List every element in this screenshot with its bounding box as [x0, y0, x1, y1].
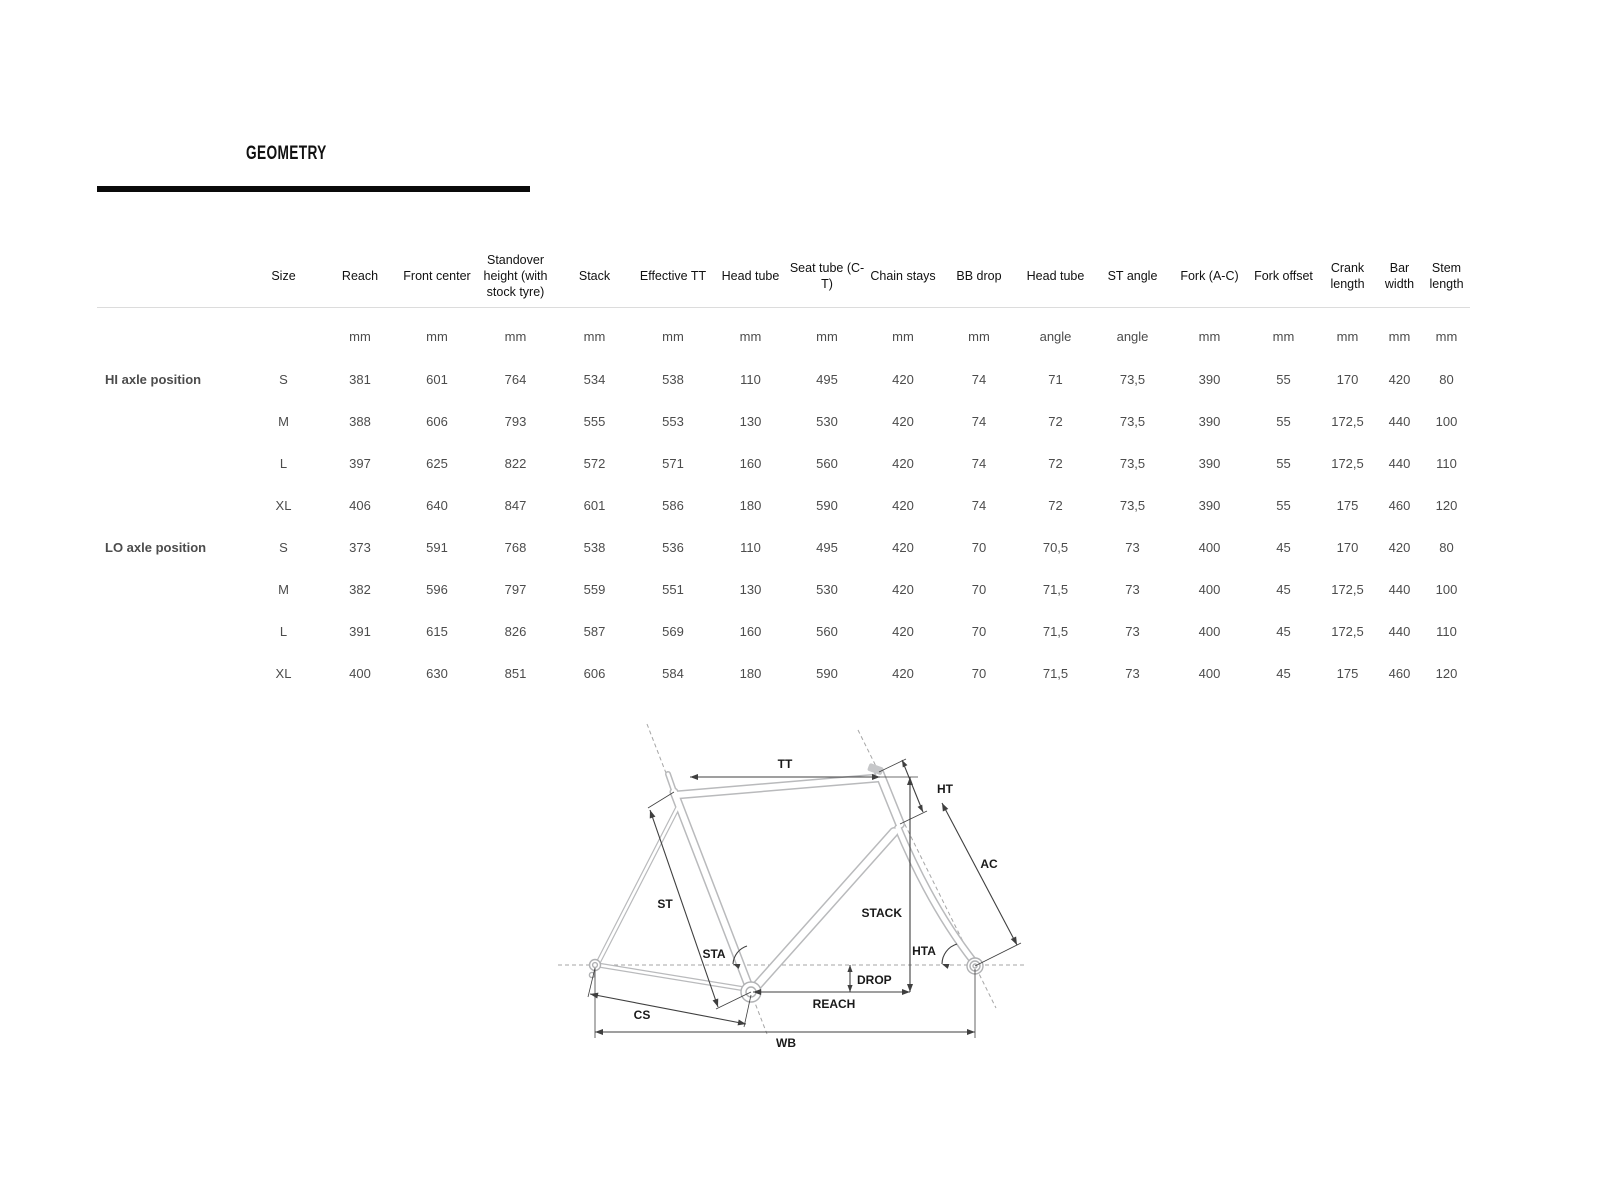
- col-header-stack: Stack: [555, 245, 634, 308]
- value-cell: 120: [1423, 652, 1470, 694]
- value-cell: 440: [1376, 610, 1423, 652]
- value-cell: 420: [865, 400, 941, 442]
- diagram-label-drop: DROP: [857, 973, 892, 987]
- row-group-label: HI axle position: [97, 358, 245, 400]
- ac-dimension: [942, 803, 1017, 945]
- table-row: LO axle positionS37359176853853611049542…: [97, 526, 1470, 568]
- value-cell: 587: [555, 610, 634, 652]
- title-underline-bar: [97, 186, 530, 192]
- value-cell: 826: [476, 610, 555, 652]
- cs-dimension: [590, 994, 746, 1024]
- dimension-lines: [588, 759, 1021, 1038]
- unit-cell: mm: [1423, 308, 1470, 359]
- col-header-standover: Standover height (with stock tyre): [476, 245, 555, 308]
- value-cell: 440: [1376, 442, 1423, 484]
- col-header-front-center: Front center: [398, 245, 476, 308]
- size-cell: S: [245, 526, 322, 568]
- value-cell: 74: [941, 484, 1017, 526]
- row-group-label: [97, 484, 245, 526]
- diagram-label-sta: STA: [702, 947, 725, 961]
- unit-cell: mm: [634, 308, 712, 359]
- row-group-label: LO axle position: [97, 526, 245, 568]
- value-cell: 55: [1248, 358, 1319, 400]
- value-cell: 390: [1171, 484, 1248, 526]
- value-cell: 400: [1171, 526, 1248, 568]
- value-cell: 80: [1423, 358, 1470, 400]
- unit-cell: mm: [789, 308, 865, 359]
- size-cell: L: [245, 442, 322, 484]
- value-cell: 73,5: [1094, 484, 1171, 526]
- bike-frame-outline: [598, 772, 974, 992]
- unit-cell: mm: [712, 308, 789, 359]
- col-header-effective-tt: Effective TT: [634, 245, 712, 308]
- value-cell: 130: [712, 400, 789, 442]
- frame-geometry-diagram: TT HT AC ST STA STACK HTA DROP REACH CS …: [548, 712, 1052, 1062]
- value-cell: 73,5: [1094, 400, 1171, 442]
- row-group-label: [97, 652, 245, 694]
- row-group-label: [97, 400, 245, 442]
- value-cell: 440: [1376, 568, 1423, 610]
- value-cell: 606: [398, 400, 476, 442]
- geometry-page: { "page": { "title": "GEOMETRY" }, "char…: [0, 0, 1600, 1200]
- unit-cell: mm: [322, 308, 398, 359]
- value-cell: 625: [398, 442, 476, 484]
- value-cell: 495: [789, 358, 865, 400]
- diagram-label-st: ST: [657, 897, 673, 911]
- value-cell: 584: [634, 652, 712, 694]
- value-cell: 847: [476, 484, 555, 526]
- value-cell: 615: [398, 610, 476, 652]
- page-title: GEOMETRY: [246, 143, 327, 165]
- diagram-label-reach: REACH: [813, 997, 856, 1011]
- ht-dimension: [902, 760, 923, 812]
- diagram-label-stack: STACK: [862, 906, 903, 920]
- value-cell: 70,5: [1017, 526, 1094, 568]
- value-cell: 560: [789, 610, 865, 652]
- value-cell: 120: [1423, 484, 1470, 526]
- value-cell: 70: [941, 610, 1017, 652]
- value-cell: 71,5: [1017, 652, 1094, 694]
- value-cell: 571: [634, 442, 712, 484]
- value-cell: 170: [1319, 526, 1376, 568]
- col-header-fork-offset: Fork offset: [1248, 245, 1319, 308]
- value-cell: 560: [789, 442, 865, 484]
- value-cell: 391: [322, 610, 398, 652]
- value-cell: 586: [634, 484, 712, 526]
- value-cell: 420: [865, 484, 941, 526]
- table-row: M3825967975595511305304207071,5734004517…: [97, 568, 1470, 610]
- value-cell: 538: [555, 526, 634, 568]
- value-cell: 175: [1319, 652, 1376, 694]
- dimension-labels: TT HT AC ST STA STACK HTA DROP REACH CS …: [634, 757, 998, 1050]
- dimension-arrows: [589, 759, 1019, 1035]
- header-row: Size Reach Front center Standover height…: [97, 245, 1470, 308]
- value-cell: 70: [941, 652, 1017, 694]
- value-cell: 74: [941, 400, 1017, 442]
- value-cell: 73: [1094, 526, 1171, 568]
- value-cell: 172,5: [1319, 610, 1376, 652]
- value-cell: 55: [1248, 400, 1319, 442]
- table-row: L3916158265875691605604207071,5734004517…: [97, 610, 1470, 652]
- value-cell: 110: [712, 526, 789, 568]
- units-corner: [97, 308, 245, 359]
- value-cell: 536: [634, 526, 712, 568]
- col-header-size: Size: [245, 245, 322, 308]
- col-header-stem-length: Stem length: [1423, 245, 1470, 308]
- unit-cell: mm: [555, 308, 634, 359]
- value-cell: 72: [1017, 400, 1094, 442]
- value-cell: 74: [941, 358, 1017, 400]
- diagram-label-ht: HT: [937, 782, 954, 796]
- value-cell: 73: [1094, 652, 1171, 694]
- value-cell: 175: [1319, 484, 1376, 526]
- value-cell: 160: [712, 442, 789, 484]
- value-cell: 440: [1376, 400, 1423, 442]
- col-header-head-tube-angle: Head tube: [1017, 245, 1094, 308]
- value-cell: 55: [1248, 484, 1319, 526]
- unit-cell: angle: [1094, 308, 1171, 359]
- value-cell: 110: [1423, 442, 1470, 484]
- value-cell: 110: [712, 358, 789, 400]
- value-cell: 400: [1171, 652, 1248, 694]
- value-cell: 71,5: [1017, 568, 1094, 610]
- value-cell: 551: [634, 568, 712, 610]
- diagram-label-hta: HTA: [912, 944, 936, 958]
- col-header-st-angle: ST angle: [1094, 245, 1171, 308]
- table-row: XL4006308516065841805904207071,573400451…: [97, 652, 1470, 694]
- diagram-label-ac: AC: [980, 857, 998, 871]
- unit-cell: mm: [476, 308, 555, 359]
- table-row: XL406640847601586180590420747273,5390551…: [97, 484, 1470, 526]
- value-cell: 390: [1171, 400, 1248, 442]
- value-cell: 420: [865, 610, 941, 652]
- value-cell: 420: [865, 568, 941, 610]
- col-header-bb-drop: BB drop: [941, 245, 1017, 308]
- col-header-crank-length: Crank length: [1319, 245, 1376, 308]
- corner-cell: [97, 245, 245, 308]
- value-cell: 606: [555, 652, 634, 694]
- table-row: L397625822572571160560420747273,53905517…: [97, 442, 1470, 484]
- value-cell: 572: [555, 442, 634, 484]
- value-cell: 100: [1423, 400, 1470, 442]
- value-cell: 530: [789, 568, 865, 610]
- value-cell: 420: [1376, 526, 1423, 568]
- value-cell: 130: [712, 568, 789, 610]
- col-header-chain-stays: Chain stays: [865, 245, 941, 308]
- value-cell: 420: [1376, 358, 1423, 400]
- value-cell: 768: [476, 526, 555, 568]
- col-header-reach: Reach: [322, 245, 398, 308]
- value-cell: 553: [634, 400, 712, 442]
- value-cell: 390: [1171, 358, 1248, 400]
- value-cell: 420: [865, 358, 941, 400]
- value-cell: 797: [476, 568, 555, 610]
- value-cell: 822: [476, 442, 555, 484]
- value-cell: 590: [789, 652, 865, 694]
- value-cell: 397: [322, 442, 398, 484]
- value-cell: 382: [322, 568, 398, 610]
- value-cell: 71: [1017, 358, 1094, 400]
- value-cell: 630: [398, 652, 476, 694]
- value-cell: 388: [322, 400, 398, 442]
- unit-cell: mm: [398, 308, 476, 359]
- value-cell: 180: [712, 484, 789, 526]
- value-cell: 460: [1376, 652, 1423, 694]
- unit-cell: mm: [1376, 308, 1423, 359]
- value-cell: 73,5: [1094, 442, 1171, 484]
- geometry-table: Size Reach Front center Standover height…: [97, 245, 1470, 694]
- size-cell: M: [245, 400, 322, 442]
- hta-angle-arc: [942, 944, 957, 964]
- value-cell: 73: [1094, 610, 1171, 652]
- col-header-bar-width: Bar width: [1376, 245, 1423, 308]
- value-cell: 172,5: [1319, 442, 1376, 484]
- value-cell: 72: [1017, 484, 1094, 526]
- value-cell: 460: [1376, 484, 1423, 526]
- value-cell: 70: [941, 526, 1017, 568]
- value-cell: 80: [1423, 526, 1470, 568]
- unit-cell: angle: [1017, 308, 1094, 359]
- value-cell: 55: [1248, 442, 1319, 484]
- value-cell: 640: [398, 484, 476, 526]
- value-cell: 555: [555, 400, 634, 442]
- value-cell: 71,5: [1017, 610, 1094, 652]
- size-cell: XL: [245, 484, 322, 526]
- value-cell: 406: [322, 484, 398, 526]
- value-cell: 180: [712, 652, 789, 694]
- diagram-label-tt: TT: [778, 757, 793, 771]
- value-cell: 764: [476, 358, 555, 400]
- table-row: HI axle positionS38160176453453811049542…: [97, 358, 1470, 400]
- value-cell: 400: [322, 652, 398, 694]
- value-cell: 70: [941, 568, 1017, 610]
- value-cell: 420: [865, 652, 941, 694]
- value-cell: 596: [398, 568, 476, 610]
- value-cell: 72: [1017, 442, 1094, 484]
- table-row: M388606793555553130530420747273,53905517…: [97, 400, 1470, 442]
- value-cell: 110: [1423, 610, 1470, 652]
- value-cell: 400: [1171, 610, 1248, 652]
- value-cell: 590: [789, 484, 865, 526]
- value-cell: 45: [1248, 568, 1319, 610]
- value-cell: 73,5: [1094, 358, 1171, 400]
- unit-cell: mm: [1248, 308, 1319, 359]
- diagram-label-wb: WB: [776, 1036, 796, 1050]
- value-cell: 74: [941, 442, 1017, 484]
- unit-cell: mm: [1319, 308, 1376, 359]
- value-cell: 100: [1423, 568, 1470, 610]
- value-cell: 160: [712, 610, 789, 652]
- value-cell: 45: [1248, 526, 1319, 568]
- value-cell: 534: [555, 358, 634, 400]
- unit-cell: mm: [941, 308, 1017, 359]
- diagram-label-cs: CS: [634, 1008, 651, 1022]
- col-header-fork-ac: Fork (A-C): [1171, 245, 1248, 308]
- value-cell: 495: [789, 526, 865, 568]
- value-cell: 538: [634, 358, 712, 400]
- row-group-label: [97, 568, 245, 610]
- unit-cell: [245, 308, 322, 359]
- value-cell: 373: [322, 526, 398, 568]
- value-cell: 530: [789, 400, 865, 442]
- value-cell: 45: [1248, 652, 1319, 694]
- value-cell: 73: [1094, 568, 1171, 610]
- value-cell: 400: [1171, 568, 1248, 610]
- value-cell: 591: [398, 526, 476, 568]
- value-cell: 381: [322, 358, 398, 400]
- size-cell: XL: [245, 652, 322, 694]
- value-cell: 420: [865, 526, 941, 568]
- size-cell: M: [245, 568, 322, 610]
- value-cell: 559: [555, 568, 634, 610]
- value-cell: 601: [555, 484, 634, 526]
- value-cell: 390: [1171, 442, 1248, 484]
- value-cell: 170: [1319, 358, 1376, 400]
- value-cell: 601: [398, 358, 476, 400]
- value-cell: 420: [865, 442, 941, 484]
- value-cell: 793: [476, 400, 555, 442]
- value-cell: 172,5: [1319, 400, 1376, 442]
- value-cell: 172,5: [1319, 568, 1376, 610]
- row-group-label: [97, 610, 245, 652]
- units-row: mm mm mm mm mm mm mm mm mm angle angle m…: [97, 308, 1470, 359]
- size-cell: S: [245, 358, 322, 400]
- size-cell: L: [245, 610, 322, 652]
- col-header-seat-tube: Seat tube (C-T): [789, 245, 865, 308]
- unit-cell: mm: [1171, 308, 1248, 359]
- value-cell: 569: [634, 610, 712, 652]
- value-cell: 45: [1248, 610, 1319, 652]
- col-header-head-tube: Head tube: [712, 245, 789, 308]
- value-cell: 851: [476, 652, 555, 694]
- row-group-label: [97, 442, 245, 484]
- unit-cell: mm: [865, 308, 941, 359]
